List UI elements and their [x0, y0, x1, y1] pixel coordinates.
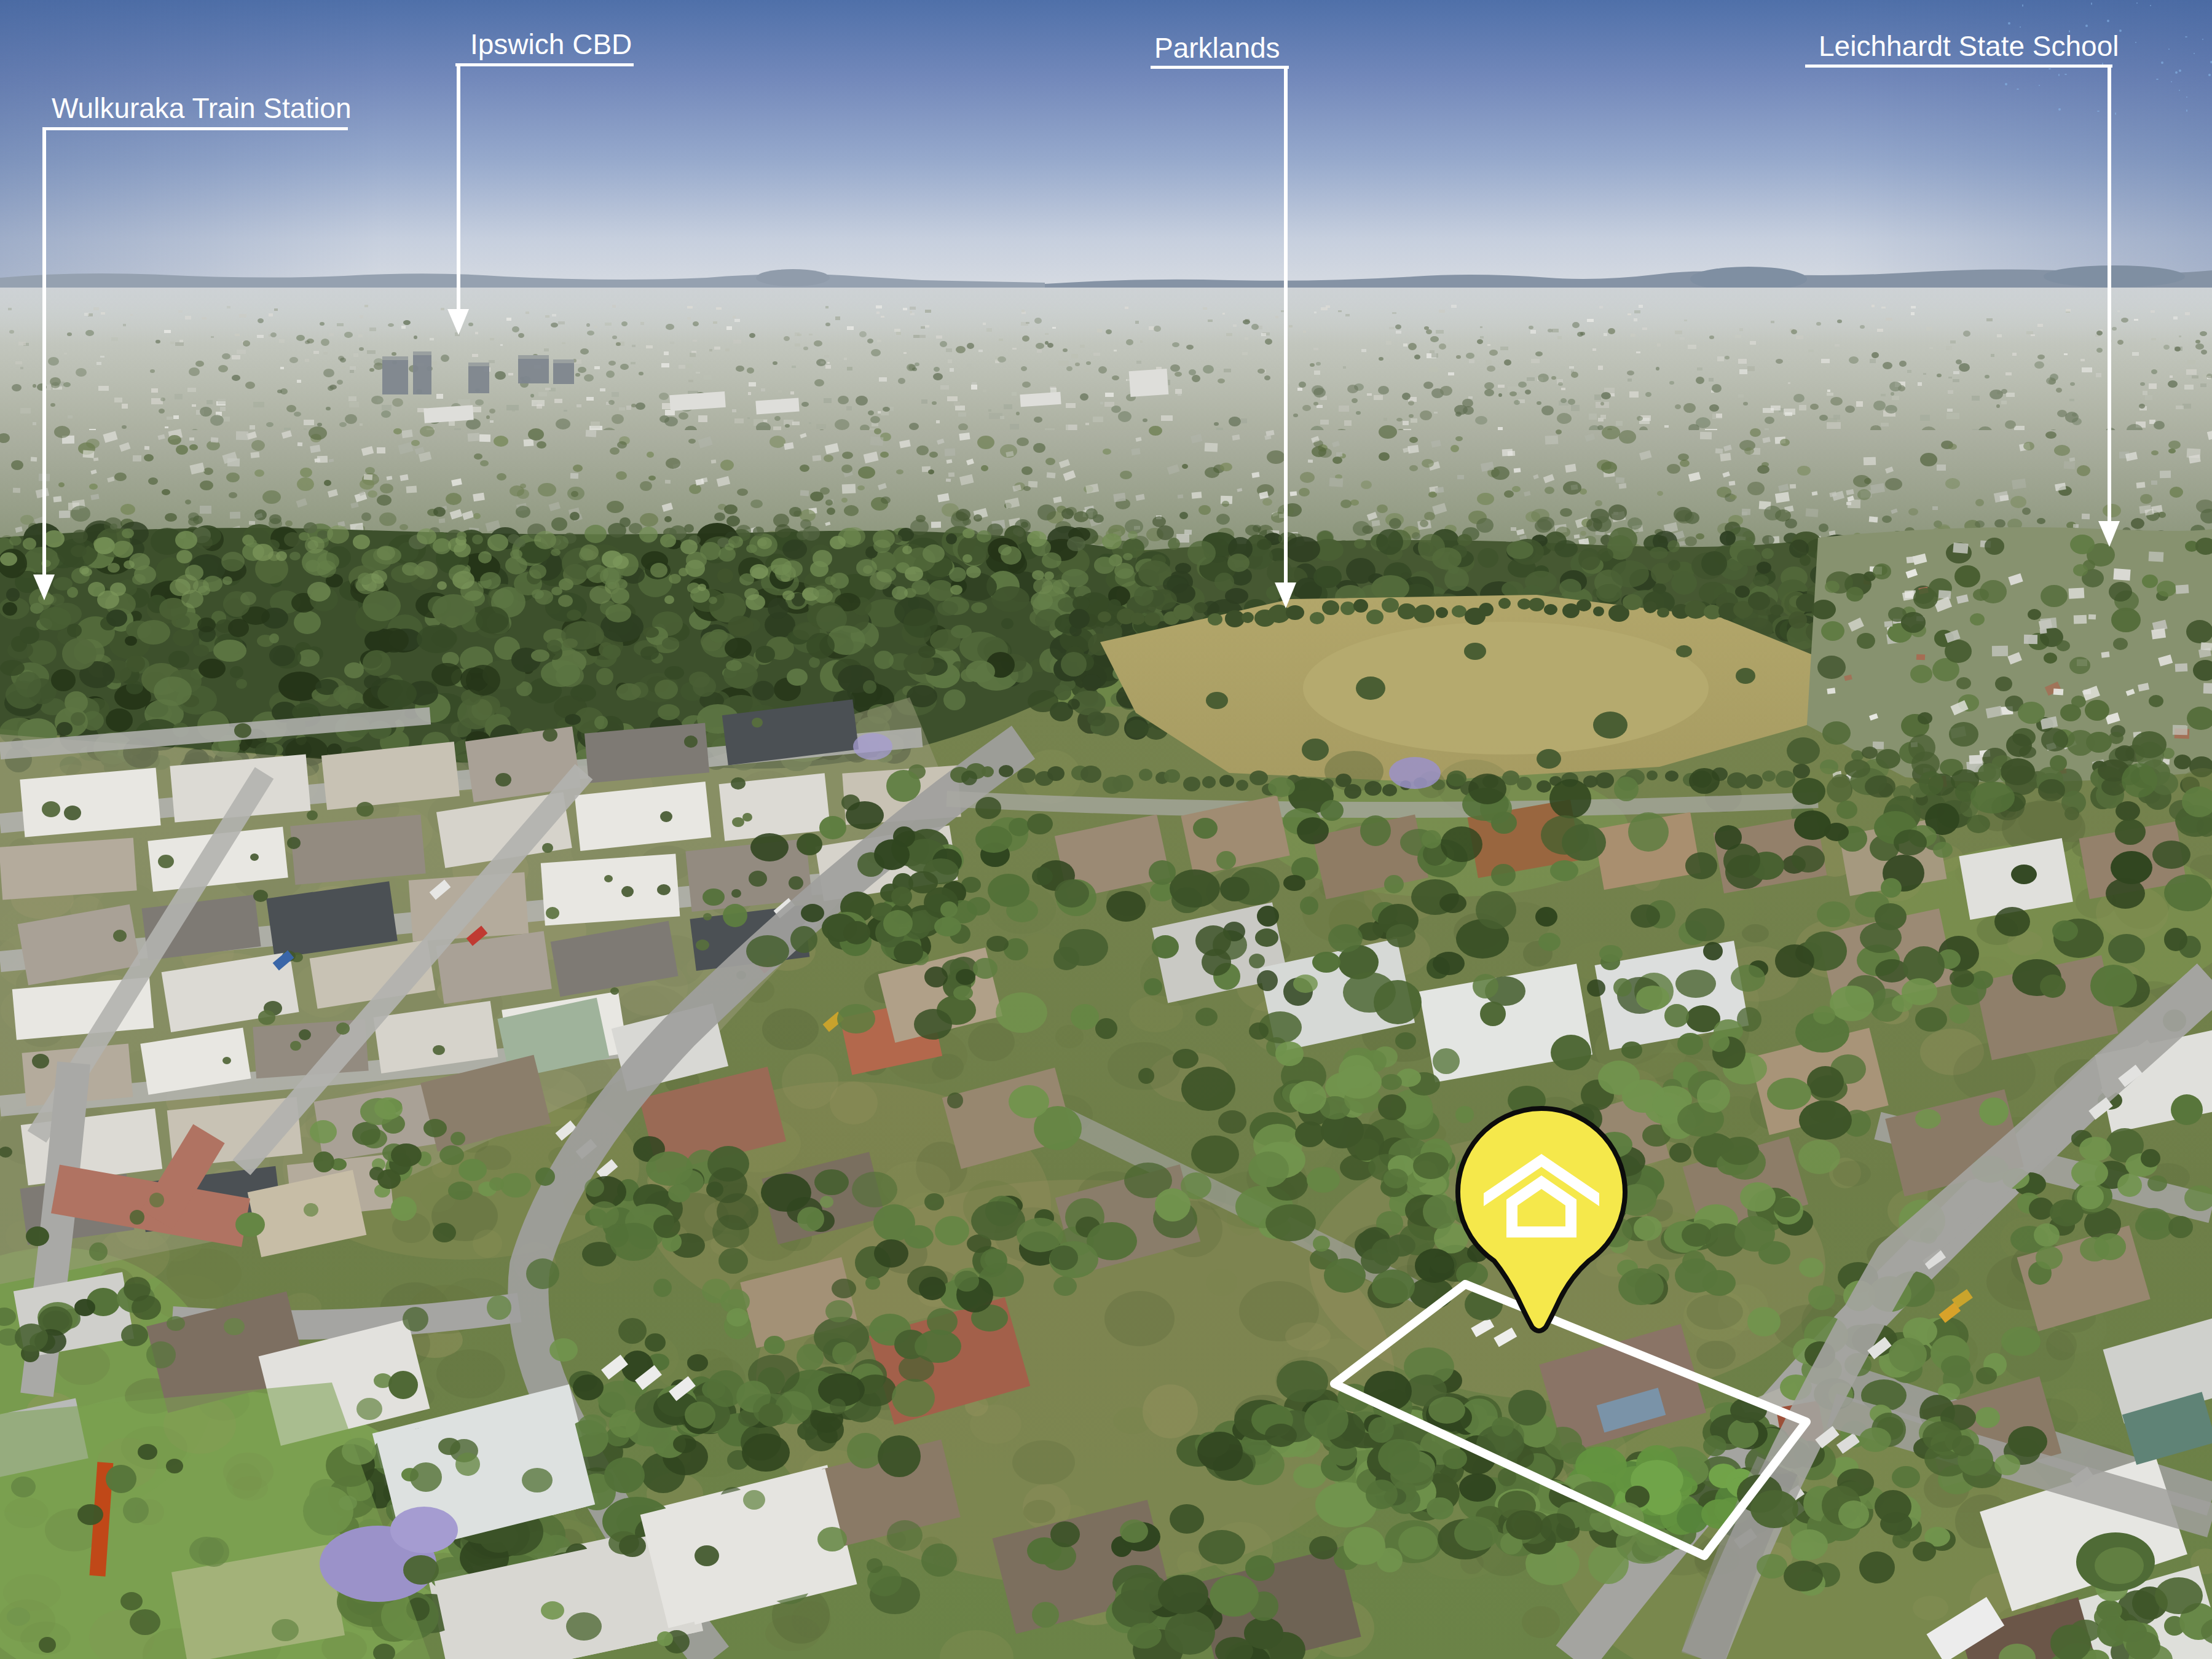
svg-text:Ipswich CBD: Ipswich CBD	[470, 28, 632, 60]
svg-text:Parklands: Parklands	[1154, 32, 1280, 64]
svg-text:Leichhardt State School: Leichhardt State School	[1819, 30, 2119, 62]
svg-text:Wulkuraka Train Station: Wulkuraka Train Station	[52, 92, 352, 124]
